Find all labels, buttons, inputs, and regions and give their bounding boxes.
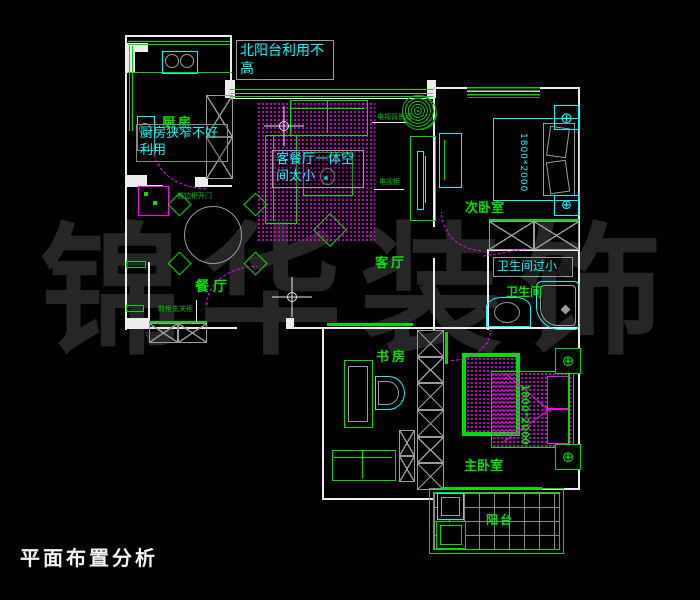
left-window xyxy=(126,261,146,268)
crosshair-symbol xyxy=(264,106,304,146)
wall-kitchen-top xyxy=(125,35,232,37)
balcony-cabinet-inner xyxy=(440,525,462,545)
nightstand: ⊕ xyxy=(555,348,581,374)
wall-study-bottom xyxy=(322,498,435,500)
left-window xyxy=(126,305,144,312)
note-north-balcony: 北阳台利用不高 xyxy=(236,40,334,80)
wall-block xyxy=(125,318,148,329)
dimension-line xyxy=(372,122,406,123)
wall-lowerwing-left xyxy=(322,327,324,500)
note-living: 客餐厅一体空间太小 xyxy=(272,150,364,188)
tv-screen xyxy=(417,151,424,210)
room-label-master: 主卧室 xyxy=(464,455,503,474)
north-balcony-mid xyxy=(230,93,433,94)
master-door-jamb xyxy=(445,332,448,364)
room-label-dining: 餐厅 xyxy=(195,276,231,296)
sink-bowl xyxy=(494,302,520,323)
study-bookshelf xyxy=(417,330,444,490)
nightstand: ⊕ xyxy=(555,444,581,470)
room-label-study: 书房 xyxy=(376,346,408,365)
bed-size-label: 1800*2000 xyxy=(518,133,528,192)
stove-burner xyxy=(165,54,179,68)
dining-table xyxy=(184,206,242,264)
study-sofa-line xyxy=(334,457,392,458)
washer-detail xyxy=(144,192,148,196)
room-label-balcony: 阳台 xyxy=(486,511,514,528)
entry-shoe-cabinet xyxy=(149,323,207,343)
leader-line xyxy=(196,300,197,322)
room-label-living: 客厅 xyxy=(375,252,407,271)
bathtub-inner xyxy=(540,285,576,326)
desk-inner xyxy=(348,366,368,422)
study-sofa-divider xyxy=(362,451,363,478)
note-kitchen: 厨房狭窄不好利用 xyxy=(136,124,228,162)
nightstand: ⊕ xyxy=(554,195,579,216)
dimension-line xyxy=(374,189,404,190)
washer-detail xyxy=(153,201,157,205)
study-side-cabinet xyxy=(399,430,415,482)
bedroom2-window xyxy=(467,87,540,98)
wall-block xyxy=(286,318,294,329)
master-bed-size-label: 1800*2000 xyxy=(519,384,530,445)
wall-block xyxy=(125,175,147,186)
stove-burner xyxy=(180,54,194,68)
sofa-divider xyxy=(327,101,328,133)
study-sofa xyxy=(332,450,396,481)
small-note-entry-cabinet: 鞋柜玄关柜 xyxy=(158,304,193,314)
master-pillow xyxy=(547,409,570,444)
kitchen-window-line xyxy=(128,44,230,45)
kitchen-window-line xyxy=(128,41,230,42)
wall-divider-lower xyxy=(433,258,435,330)
cad-floorplan-canvas[interactable]: 锦 华 装 饰 xyxy=(0,0,700,600)
bedroom2-dresser xyxy=(439,133,462,188)
kitchen-wall-line xyxy=(132,46,133,131)
bed-pillow xyxy=(546,160,570,194)
room-label-bathroom: 卫生间 xyxy=(506,283,542,300)
north-balcony-edge xyxy=(230,89,433,90)
study-door-track xyxy=(327,323,413,326)
small-note-tv-stand: 电视柜 xyxy=(379,177,400,187)
kitchen-wall-line xyxy=(129,46,130,131)
room-label-bedroom2: 次卧室 xyxy=(465,197,504,216)
wall-living-top xyxy=(230,98,435,99)
bed-pillow xyxy=(546,126,570,158)
small-note-dining-cabinet: 餐边柜开门 xyxy=(177,191,212,201)
small-note-tv-wall: 电视背景墙 xyxy=(377,112,412,122)
headboard xyxy=(568,371,570,446)
north-balcony-edge xyxy=(230,96,433,97)
wall-corridor-south xyxy=(292,327,580,329)
tv-screen-line xyxy=(425,156,426,203)
crosshair-symbol xyxy=(272,277,312,317)
washing-machine-inner xyxy=(441,497,460,516)
bedroom2-wardrobe xyxy=(489,221,579,250)
nightstand: ⊕ xyxy=(554,105,579,130)
wall-inner-left xyxy=(148,262,150,327)
master-pillow xyxy=(547,376,570,409)
dresser-line xyxy=(444,140,445,180)
page-title: 平面布置分析 xyxy=(20,542,158,571)
note-bathroom: 卫生间过小 xyxy=(493,257,573,277)
